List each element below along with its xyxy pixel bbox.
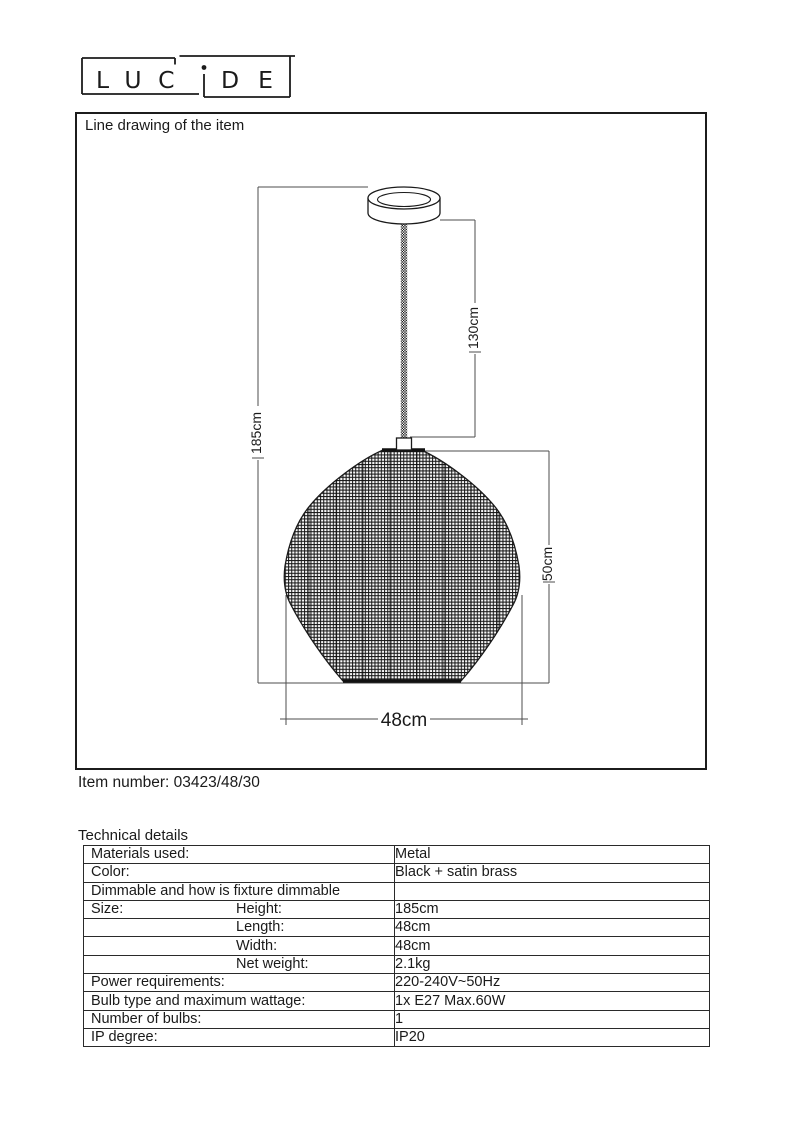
spec-label: Materials used: <box>84 846 236 863</box>
spec-sublabel: Height: <box>236 901 394 918</box>
spec-label-cell: Length: <box>84 919 395 937</box>
spec-label <box>84 956 236 973</box>
dim-label-shade-height: 50cm <box>539 547 555 581</box>
logo-letter-i-dot <box>202 65 207 70</box>
item-number: Item number: 03423/48/30 <box>78 774 260 792</box>
drawing-box-title: Line drawing of the item <box>85 117 244 135</box>
spec-sublabel: Width: <box>236 938 394 955</box>
suspension-cord <box>401 221 407 438</box>
table-row: Bulb type and maximum wattage:1x E27 Max… <box>84 992 710 1010</box>
table-row: Number of bulbs:1 <box>84 1010 710 1028</box>
table-row: Dimmable and how is fixture dimmable <box>84 882 710 900</box>
table-row: Materials used:Metal <box>84 846 710 864</box>
table-row: IP degree:IP20 <box>84 1028 710 1046</box>
spec-value: 185cm <box>395 900 710 918</box>
spec-label: Power requirements: <box>84 974 236 991</box>
spec-value: Metal <box>395 846 710 864</box>
spec-sublabel <box>236 974 394 991</box>
lamp-socket <box>397 438 412 450</box>
tech-table-body: Materials used:MetalColor:Black + satin … <box>84 846 710 1047</box>
ceiling-canopy <box>368 187 440 224</box>
spec-label <box>84 919 236 936</box>
spec-value: 1 <box>395 1010 710 1028</box>
spec-label-cell: Number of bulbs: <box>84 1010 395 1028</box>
logo-text-left: LUC <box>96 66 191 94</box>
spec-label-cell: Color: <box>84 864 395 882</box>
spec-sublabel <box>236 846 394 863</box>
table-row: Color:Black + satin brass <box>84 864 710 882</box>
line-drawing-box: 185cm 130cm 50cm 48cm Li <box>75 112 707 770</box>
spec-label: Dimmable and how is fixture dimmable <box>84 883 236 900</box>
pendant-line-drawing: 185cm 130cm 50cm 48cm <box>77 114 705 768</box>
spec-value: 48cm <box>395 937 710 955</box>
spec-sublabel <box>236 993 394 1010</box>
spec-sublabel <box>236 883 394 900</box>
spec-label-cell: Size:Height: <box>84 900 395 918</box>
spec-value <box>395 882 710 900</box>
spec-label: Size: <box>84 901 236 918</box>
spec-label-cell: Width: <box>84 937 395 955</box>
spec-label: Number of bulbs: <box>84 1011 236 1028</box>
spec-sublabel <box>236 1029 394 1046</box>
spec-label: Bulb type and maximum wattage: <box>84 993 236 1010</box>
lamp-shade <box>284 450 520 681</box>
spec-sublabel: Net weight: <box>236 956 394 973</box>
dim-label-shade-width: 48cm <box>381 710 427 731</box>
spec-value: IP20 <box>395 1028 710 1046</box>
spec-value: 1x E27 Max.60W <box>395 992 710 1010</box>
table-row: Size:Height:185cm <box>84 900 710 918</box>
spec-label-cell: Net weight: <box>84 955 395 973</box>
spec-sublabel: Length: <box>236 919 394 936</box>
table-row: Net weight:2.1kg <box>84 955 710 973</box>
spec-label-cell: Bulb type and maximum wattage: <box>84 992 395 1010</box>
spec-value: 2.1kg <box>395 955 710 973</box>
spec-label: IP degree: <box>84 1029 236 1046</box>
lucide-logo: LUC DE <box>70 45 310 105</box>
technical-details-table: Materials used:MetalColor:Black + satin … <box>83 845 710 1047</box>
spec-sublabel <box>236 1011 394 1028</box>
dim-label-cord-height: 130cm <box>465 307 481 349</box>
technical-details-heading: Technical details <box>78 827 188 844</box>
spec-sheet-page: LUC DE <box>0 0 802 1134</box>
spec-label-cell: Power requirements: <box>84 974 395 992</box>
table-row: Power requirements:220-240V~50Hz <box>84 974 710 992</box>
table-row: Width:48cm <box>84 937 710 955</box>
logo-text-right: DE <box>221 66 292 94</box>
table-row: Length:48cm <box>84 919 710 937</box>
spec-label-cell: Materials used: <box>84 846 395 864</box>
dim-label-overall-height: 185cm <box>248 412 264 454</box>
spec-label-cell: IP degree: <box>84 1028 395 1046</box>
spec-value: 48cm <box>395 919 710 937</box>
spec-label <box>84 938 236 955</box>
spec-value: Black + satin brass <box>395 864 710 882</box>
spec-value: 220-240V~50Hz <box>395 974 710 992</box>
spec-label-cell: Dimmable and how is fixture dimmable <box>84 882 395 900</box>
spec-sublabel <box>236 864 394 881</box>
spec-label: Color: <box>84 864 236 881</box>
